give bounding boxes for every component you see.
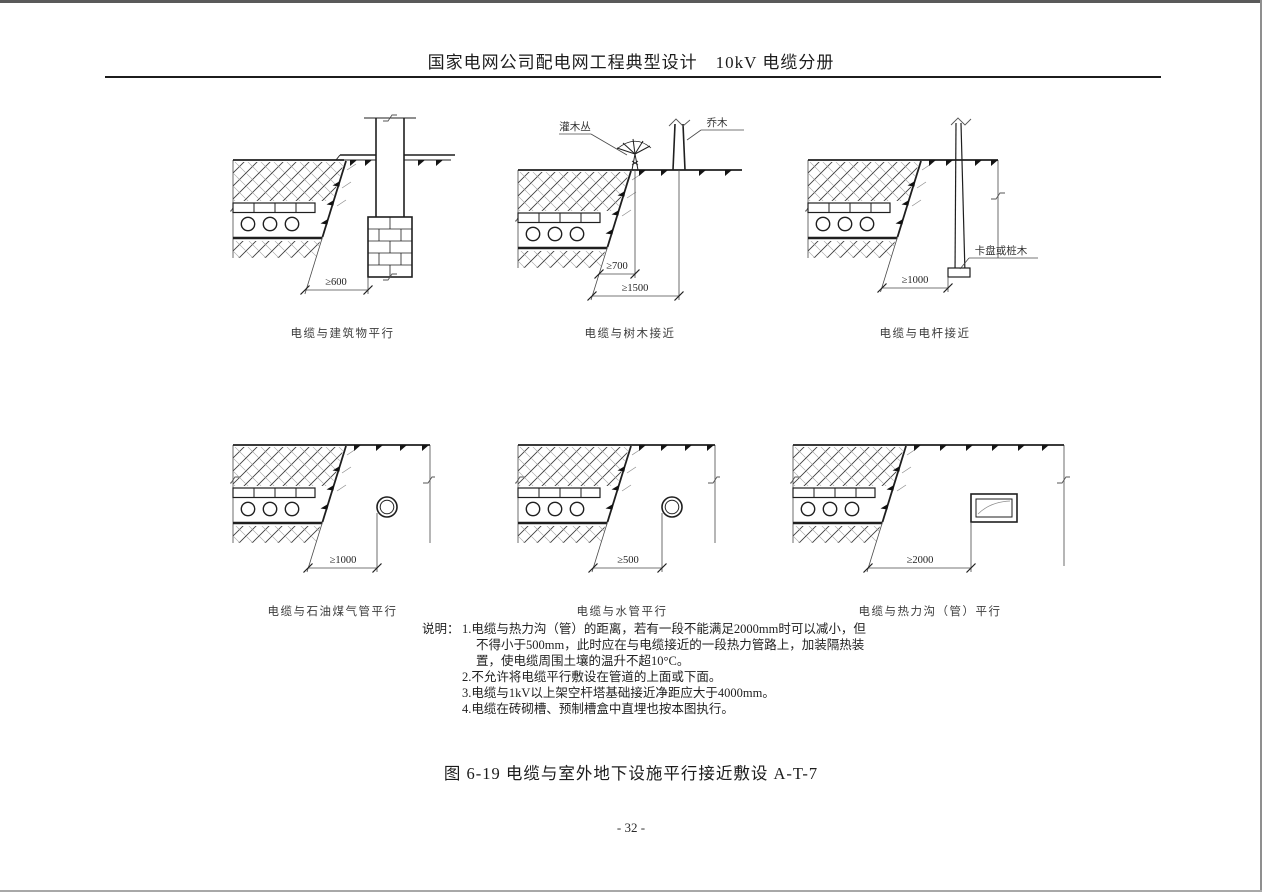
cable-trench-cross-section bbox=[518, 171, 641, 268]
figure-caption: 图 6-19 电缆与室外地下设施平行接近敷设 A-T-7 bbox=[0, 760, 1262, 784]
cross-section-building: ≥600 bbox=[230, 108, 455, 308]
cross-section-water-pipe: ≥500 bbox=[515, 418, 720, 583]
pole-base-label: 卡盘或桩木 bbox=[975, 244, 1028, 257]
diagram-caption: 电缆与电杆接近 bbox=[825, 325, 1025, 341]
cable-trench-cross-section bbox=[518, 446, 641, 543]
cable-trench-cross-section bbox=[808, 161, 931, 258]
page-header-title: 国家电网公司配电网工程典型设计 10kV 电缆分册 bbox=[0, 48, 1262, 73]
notes-block: 说明： 1.电缆与热力沟（管）的距离，若有一段不能满足2000mm时可以减小，但… bbox=[422, 621, 874, 717]
notes-label: 说明： bbox=[422, 621, 462, 717]
heating-duct-icon bbox=[971, 494, 1017, 522]
page-edge-top bbox=[0, 0, 1262, 3]
shrub-icon bbox=[617, 139, 651, 170]
diagram-caption: 电缆与石油煤气管平行 bbox=[241, 603, 425, 619]
cross-section-gas-pipe: ≥1000 bbox=[230, 418, 435, 583]
pole-icon bbox=[948, 118, 971, 277]
document-page: 国家电网公司配电网工程典型设计 10kV 电缆分册 bbox=[0, 0, 1262, 892]
water-pipe-icon bbox=[662, 497, 682, 517]
note-item: 1.电缆与热力沟（管）的距离，若有一段不能满足2000mm时可以减小，但不得小于… bbox=[462, 621, 874, 669]
cable-trench-cross-section bbox=[793, 446, 916, 543]
tree-label: 乔木 bbox=[707, 117, 728, 129]
dimension-label: ≥600 bbox=[325, 277, 347, 288]
dimension-label: ≥700 bbox=[606, 261, 628, 272]
dimension-2000: ≥2000 bbox=[864, 522, 976, 573]
gas-pipe-icon bbox=[377, 497, 397, 517]
diagram-caption: 电缆与建筑物平行 bbox=[251, 325, 435, 341]
dimension-label: ≥1500 bbox=[622, 283, 649, 294]
tree-trunk-icon bbox=[669, 119, 690, 170]
header-rule bbox=[105, 76, 1161, 78]
notes-items: 1.电缆与热力沟（管）的距离，若有一段不能满足2000mm时可以减小，但不得小于… bbox=[462, 621, 874, 717]
dimension-label: ≥2000 bbox=[907, 555, 934, 566]
diagram-caption: 电缆与热力沟（管）平行 bbox=[815, 603, 1045, 619]
diagram-caption: 电缆与水管平行 bbox=[515, 603, 729, 619]
diagram-cable-trees: 灌木丛 乔木 ≥700 ≥150 bbox=[515, 108, 745, 341]
diagram-caption: 电缆与树木接近 bbox=[523, 325, 737, 341]
dimension-label: ≥1000 bbox=[330, 555, 357, 566]
cross-section-pole: 卡盘或桩木 ≥1000 bbox=[805, 108, 1045, 308]
note-item: 3.电缆与1kV以上架空杆塔基础接近净距应大于4000mm。 bbox=[462, 685, 874, 701]
cross-section-heating-duct: ≥2000 bbox=[790, 418, 1070, 583]
dimension-label: ≥1000 bbox=[902, 275, 929, 286]
shrub-label: 灌木丛 bbox=[559, 121, 591, 133]
diagram-cable-heating-duct: ≥2000 电缆与热力沟（管）平行 bbox=[790, 418, 1070, 619]
diagram-cable-building: ≥600 电缆与建筑物平行 bbox=[230, 108, 455, 341]
diagram-cable-water-pipe: ≥500 电缆与水管平行 bbox=[515, 418, 720, 619]
cable-trench-cross-section bbox=[233, 446, 356, 543]
diagram-cable-gas-pipe: ≥1000 电缆与石油煤气管平行 bbox=[230, 418, 435, 619]
cross-section-trees: 灌木丛 乔木 ≥700 ≥150 bbox=[515, 108, 745, 308]
building-wall bbox=[336, 115, 455, 217]
dimension-label: ≥500 bbox=[617, 555, 639, 566]
building-foundation bbox=[368, 217, 412, 280]
cable-trench-cross-section bbox=[233, 161, 356, 258]
note-item: 4.电缆在砖砌槽、预制槽盒中直埋也按本图执行。 bbox=[462, 701, 874, 717]
page-number: - 32 - bbox=[0, 820, 1262, 836]
note-item: 2.不允许将电缆平行敷设在管道的上面或下面。 bbox=[462, 669, 874, 685]
diagram-cable-pole: 卡盘或桩木 ≥1000 电缆与电杆接近 bbox=[805, 108, 1045, 341]
